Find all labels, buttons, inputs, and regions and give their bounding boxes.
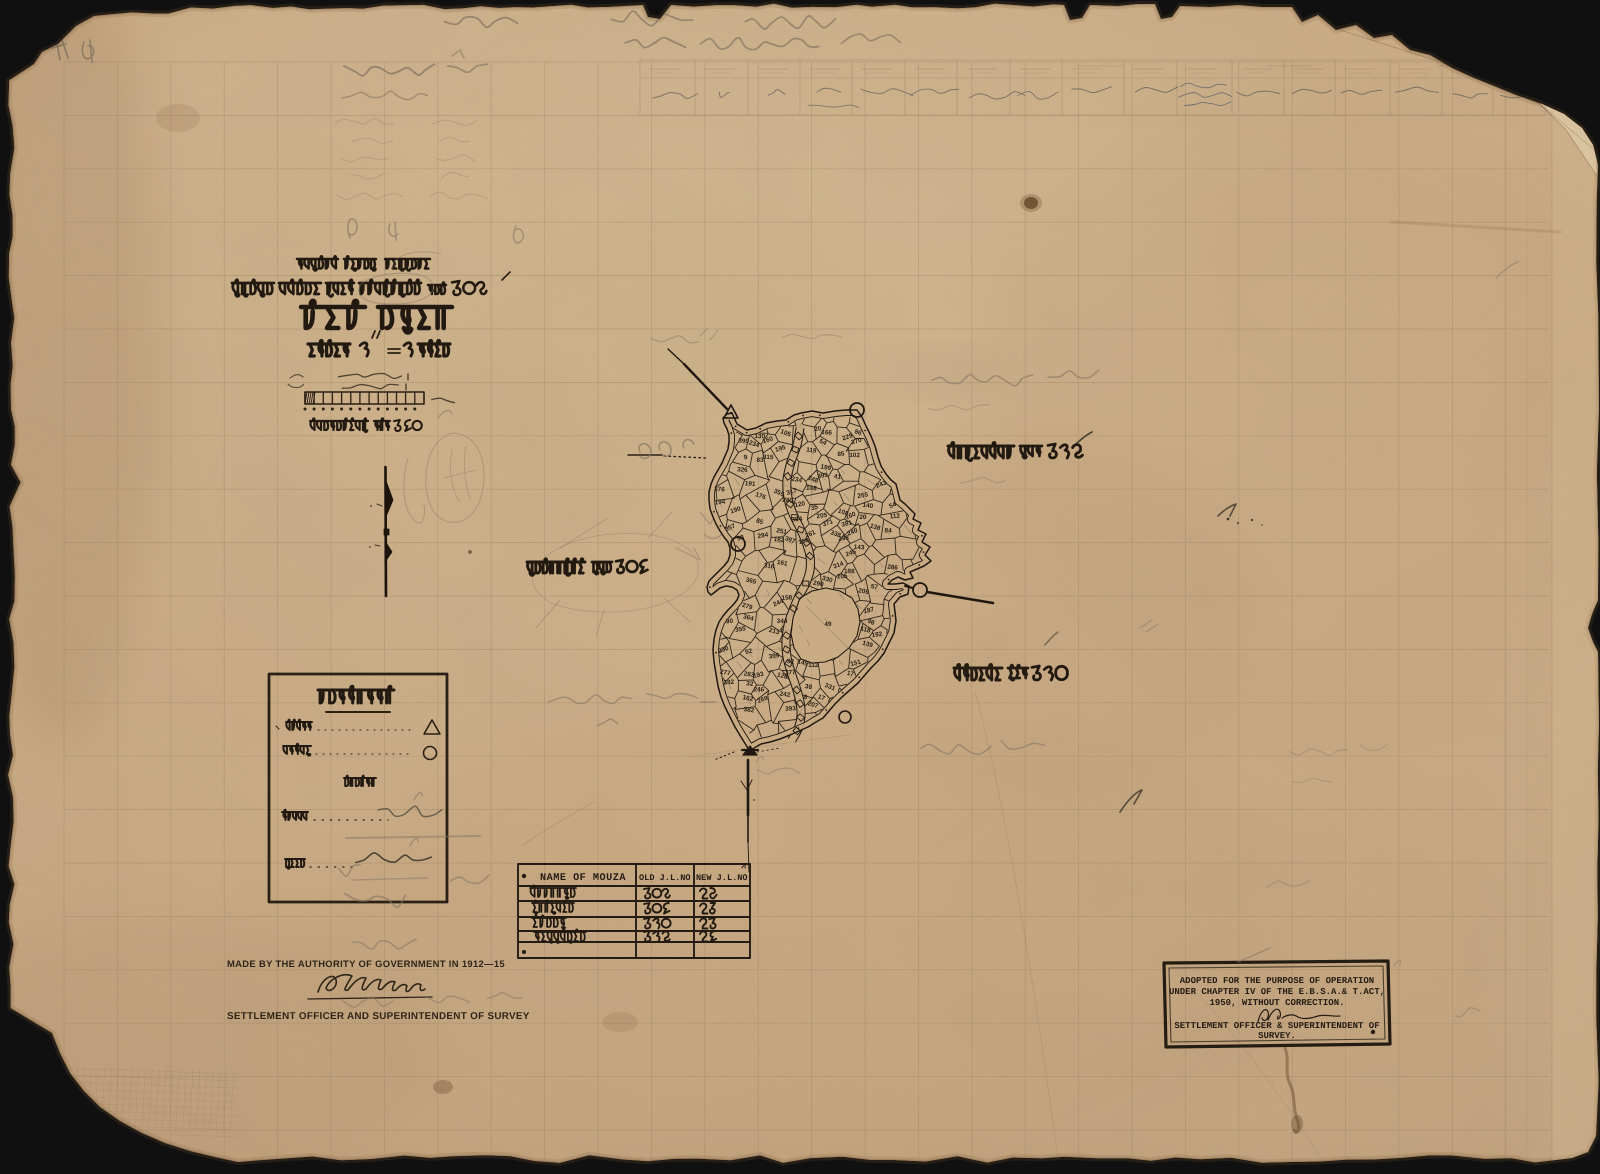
svg-text:SURVEY.: SURVEY. [1258,1031,1296,1041]
svg-text:182: 182 [773,536,785,544]
svg-text:166: 166 [821,429,833,437]
svg-text:194: 194 [714,499,726,507]
svg-text:ADOPTED FOR THE PURPOSE OF OPE: ADOPTED FOR THE PURPOSE OF OPERATION [1180,976,1374,986]
svg-text:UNDER CHAPTER IV OF THE E.B.S.: UNDER CHAPTER IV OF THE E.B.S.A.& T.ACT, [1169,987,1385,997]
svg-text:376: 376 [714,486,726,494]
svg-text:140: 140 [862,502,874,510]
svg-text:83: 83 [756,457,764,464]
svg-text:NAME OF MOUZA: NAME OF MOUZA [540,873,626,884]
svg-text:SETTLEMENT OFFICER AND SUPERIN: SETTLEMENT OFFICER AND SUPERINTENDENT OF… [227,1011,530,1022]
svg-text:316: 316 [763,562,775,570]
svg-text:393: 393 [785,705,796,713]
svg-text:32: 32 [746,680,754,688]
svg-text:119: 119 [806,447,818,455]
svg-text:41: 41 [833,473,841,481]
svg-text:57: 57 [870,583,878,591]
svg-text:OLD J.L.NO: OLD J.L.NO [639,873,691,883]
svg-text:286: 286 [887,564,899,572]
svg-text:102: 102 [849,452,860,459]
svg-text:377: 377 [785,669,796,676]
svg-text:90: 90 [726,618,734,626]
svg-text:315: 315 [763,454,774,461]
svg-text:280: 280 [782,497,794,505]
svg-text:112: 112 [889,512,900,520]
svg-text:344: 344 [777,618,788,625]
svg-text:20: 20 [814,425,822,433]
svg-text:326: 326 [737,466,748,474]
svg-text:20: 20 [859,514,867,521]
svg-text:NEW J.L.NO: NEW J.L.NO [696,873,748,883]
svg-text:1950, WITHOUT CORRECTION.: 1950, WITHOUT CORRECTION. [1209,998,1344,1008]
svg-text:191: 191 [745,480,757,488]
svg-text:MADE BY THE AUTHORITY OF GOVER: MADE BY THE AUTHORITY OF GOVERNMENT IN 1… [227,958,505,969]
svg-text:112: 112 [808,662,819,669]
svg-text:SETTLEMENT OFFICER & SUPERINTE: SETTLEMENT OFFICER & SUPERINTENDENT OF [1174,1021,1379,1031]
svg-text:85: 85 [837,451,845,458]
